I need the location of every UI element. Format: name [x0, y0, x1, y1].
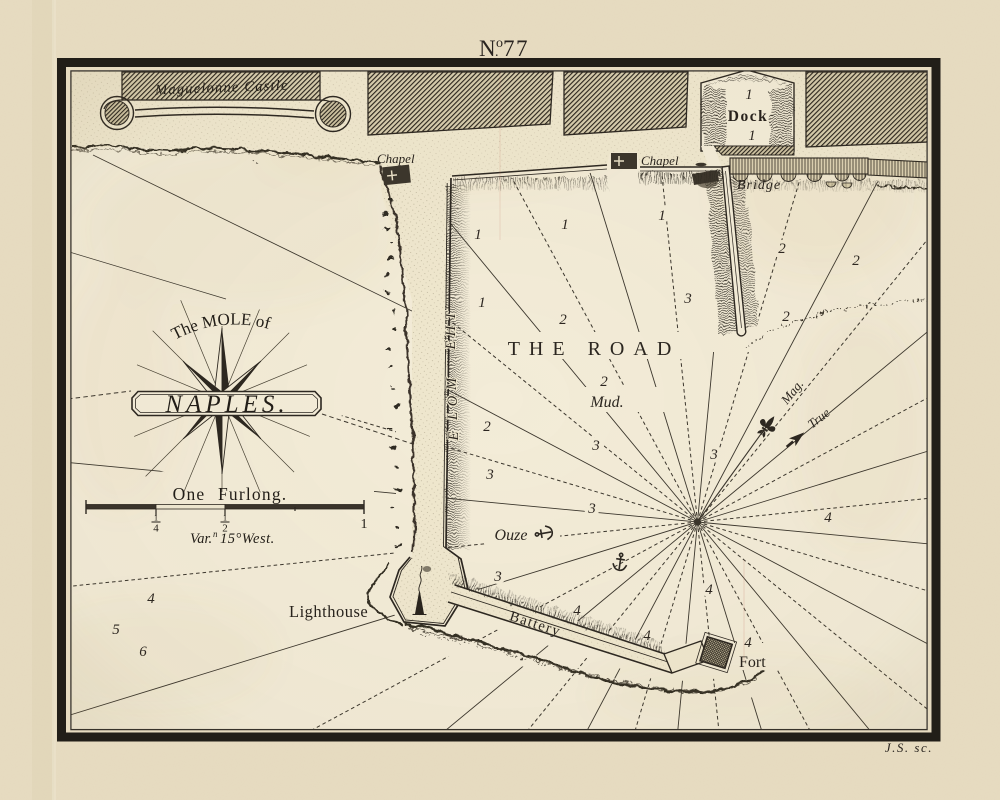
svg-text:77: 77 [503, 36, 529, 61]
svg-text:J.S. sc.: J.S. sc. [885, 740, 933, 755]
svg-text:N: N [479, 36, 496, 61]
svg-text:.: . [495, 45, 499, 60]
